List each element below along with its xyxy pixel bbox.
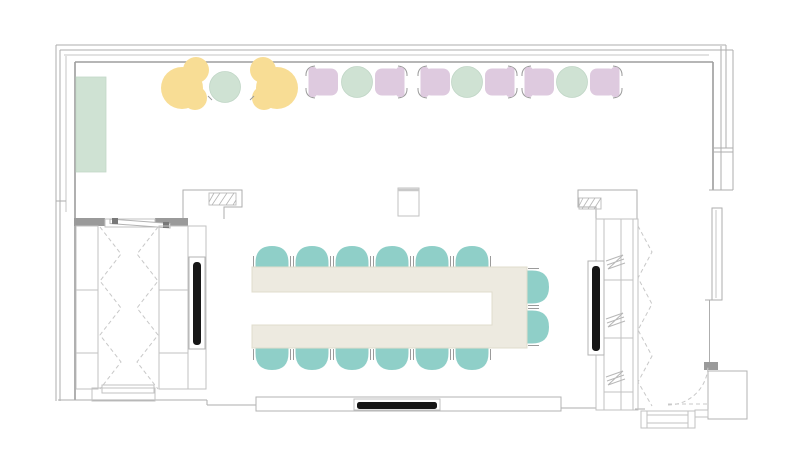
guest-chair-purple	[522, 66, 554, 98]
bifold-door	[638, 226, 652, 406]
vestibule-block	[708, 371, 747, 419]
closet-base	[92, 388, 155, 401]
task-chair	[254, 246, 291, 268]
cabinet-shelves	[76, 290, 98, 353]
side-table	[452, 67, 483, 98]
tv-display-left	[193, 262, 201, 345]
floor-box	[398, 188, 419, 216]
task-chair	[374, 348, 411, 370]
guest-chair-purple	[418, 66, 450, 98]
guest-chair-purple	[375, 66, 407, 98]
lounge-area	[161, 57, 622, 110]
guest-chair-purple	[485, 66, 517, 98]
column-hatch-left	[209, 193, 236, 205]
bottom-credenza	[256, 397, 561, 411]
floor-plan-canvas	[0, 0, 800, 462]
task-chair	[414, 348, 451, 370]
lounge-chair-yellow	[161, 57, 209, 110]
entry-door	[641, 362, 747, 428]
closet-left	[74, 218, 206, 401]
task-chair	[334, 348, 371, 370]
guest-chair-purple	[590, 66, 622, 98]
wall-stub	[704, 362, 718, 370]
shelf-contents	[606, 313, 625, 327]
cabinet-column	[159, 226, 188, 389]
glass-panel	[712, 208, 722, 300]
task-chair	[334, 246, 371, 268]
cabinet-column	[76, 226, 98, 389]
task-chair	[527, 309, 549, 346]
closet-right	[588, 219, 652, 410]
side-table	[342, 67, 373, 98]
conference-area	[252, 246, 549, 370]
shelf-contents	[606, 371, 625, 385]
bifold-door	[137, 227, 158, 389]
task-chair	[294, 348, 331, 370]
side-table	[557, 67, 588, 98]
floor-plan-drawing	[0, 0, 800, 462]
chair-leg-tick	[208, 96, 212, 100]
conference-table	[252, 267, 527, 348]
closet-base-inner	[102, 385, 154, 393]
tv-display-right	[592, 266, 600, 351]
task-chair	[454, 246, 491, 268]
guest-chair-purple	[306, 66, 338, 98]
wall-jog-right	[578, 190, 637, 219]
bifold-door	[100, 227, 121, 389]
door-pivot	[112, 218, 118, 224]
task-chair	[527, 269, 549, 306]
tv-display-bottom	[357, 402, 437, 409]
task-chair	[454, 348, 491, 370]
cabinet-shelves	[159, 290, 188, 353]
entry-landing	[641, 411, 695, 428]
lounge-chair-yellow	[250, 57, 298, 110]
shelf-contents	[606, 255, 625, 269]
door-pivot	[163, 222, 169, 228]
task-chair	[254, 348, 291, 370]
threshold-step	[695, 410, 708, 417]
wall-stub	[74, 218, 105, 226]
task-chair	[414, 246, 451, 268]
side-table	[210, 72, 241, 103]
task-chair	[294, 246, 331, 268]
sideboard	[76, 77, 106, 172]
door-swing-arc	[668, 365, 708, 405]
task-chair	[374, 246, 411, 268]
